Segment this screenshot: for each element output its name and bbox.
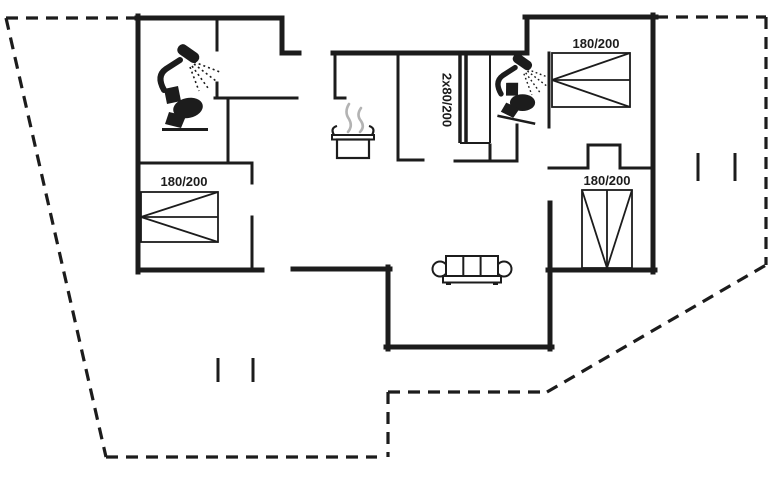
- door-size-label: 2x80/200: [440, 73, 455, 127]
- bed-size-label: 180/200: [161, 174, 208, 189]
- floor-plan-page: 180/200180/200180/2002x80/200: [0, 0, 768, 480]
- bed-size-label: 180/200: [573, 36, 620, 51]
- floor-plan-drawing: 180/200180/200180/2002x80/200: [0, 0, 768, 480]
- bed-size-label: 180/200: [584, 173, 631, 188]
